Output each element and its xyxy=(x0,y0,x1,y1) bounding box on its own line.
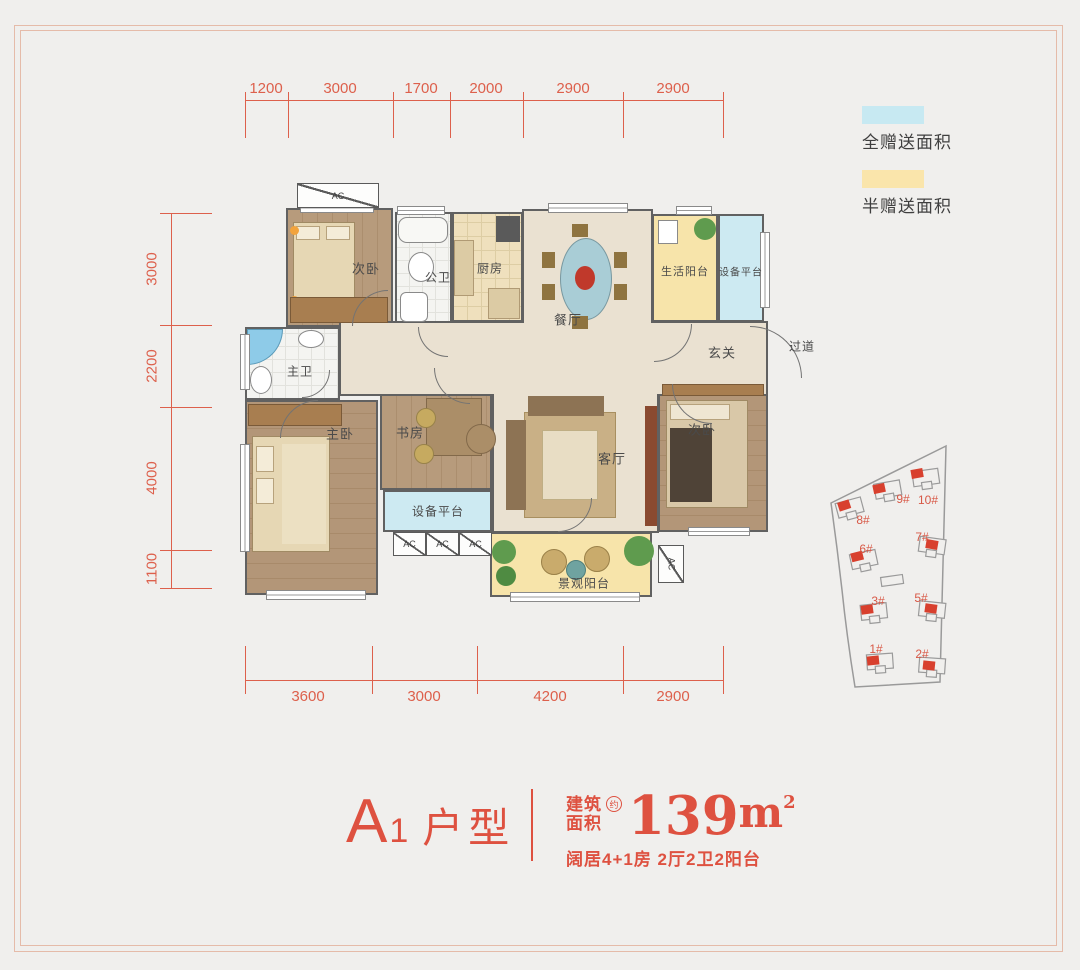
lamp xyxy=(290,226,299,235)
label-dining: 餐厅 xyxy=(554,310,582,329)
dim-tick xyxy=(160,407,212,408)
dimension-line-left xyxy=(171,213,172,588)
pillow xyxy=(296,226,320,240)
label-bedroom2-top: 次卧 xyxy=(352,259,380,278)
table-centerpiece xyxy=(575,266,595,290)
chair xyxy=(614,252,627,268)
dim-tick xyxy=(245,92,246,138)
ac-platform-3: AC xyxy=(459,532,492,556)
chair xyxy=(542,284,555,300)
dim-bottom-0: 3600 xyxy=(291,688,324,705)
area-label-line2: 面积 xyxy=(566,815,602,834)
pillow xyxy=(326,226,350,240)
dim-left-2: 4000 xyxy=(144,461,161,494)
dim-top-0: 1200 xyxy=(249,80,282,97)
label-equip-bottom: 设备平台 xyxy=(412,503,464,520)
plant xyxy=(694,218,716,240)
dim-tick xyxy=(288,92,289,138)
window xyxy=(676,206,712,215)
unit-type-letter: A xyxy=(346,796,387,849)
dim-tick xyxy=(450,92,451,138)
dimension-line-bottom xyxy=(245,680,723,681)
area-label-line1: 建筑 xyxy=(566,796,602,815)
site-label-3: 3# xyxy=(871,594,884,608)
blanket xyxy=(282,444,326,544)
plant xyxy=(492,540,516,564)
ac-platform-right: AC xyxy=(658,545,684,583)
dim-tick xyxy=(623,92,624,138)
side-table xyxy=(466,424,496,454)
site-plan xyxy=(815,438,965,704)
dim-bottom-1: 3000 xyxy=(407,688,440,705)
unit-description: 阔居4+1房 2厅2卫2阳台 xyxy=(566,845,761,870)
window xyxy=(510,592,640,602)
site-label-9: 9# xyxy=(896,492,909,506)
window xyxy=(548,203,628,213)
dim-tick xyxy=(245,646,246,694)
sofa xyxy=(528,396,604,416)
dim-bottom-3: 2900 xyxy=(656,688,689,705)
dim-tick xyxy=(393,92,394,138)
area-value: 139 xyxy=(628,796,739,837)
dim-left-0: 3000 xyxy=(144,252,161,285)
label-view-balcony: 景观阳台 xyxy=(558,575,610,592)
unit-type-suffix: 户型 xyxy=(422,810,514,847)
dim-tick xyxy=(723,92,724,138)
sofa xyxy=(506,420,526,510)
dim-tick xyxy=(160,325,212,326)
dim-tick xyxy=(160,550,212,551)
label-life-balcony: 生活阳台 xyxy=(661,263,709,279)
dim-top-1: 3000 xyxy=(323,80,356,97)
area-block: 建筑 面积 约 139 m 2 xyxy=(566,796,796,837)
dim-left-1: 2200 xyxy=(144,349,161,382)
dimension-line-top xyxy=(245,100,723,101)
legend-label-half-gift: 半赠送面积 xyxy=(862,192,952,217)
site-label-6: 6# xyxy=(859,542,872,556)
ac-label: AC xyxy=(436,539,449,549)
legend-label-full-gift: 全赠送面积 xyxy=(862,128,952,153)
dim-top-4: 2900 xyxy=(556,80,589,97)
sink xyxy=(298,330,324,348)
washer xyxy=(658,220,678,244)
dim-tick xyxy=(623,646,624,694)
blanket xyxy=(670,428,712,502)
dim-tick xyxy=(523,92,524,138)
balcony-chair xyxy=(541,549,567,575)
label-equip-top: 设备平台 xyxy=(719,264,763,279)
dim-tick xyxy=(160,213,212,214)
site-label-1: 1# xyxy=(869,642,882,656)
floorplan-page: 全赠送面积 半赠送面积 1200 3000 1700 2000 2900 290… xyxy=(0,0,1080,970)
dim-top-5: 2900 xyxy=(656,80,689,97)
chair xyxy=(414,444,434,464)
area-label: 建筑 面积 xyxy=(566,796,602,833)
toilet xyxy=(250,366,272,394)
site-label-7: 7# xyxy=(915,530,928,544)
dim-tick xyxy=(723,646,724,694)
kitchen-counter xyxy=(488,288,520,319)
dim-top-3: 2000 xyxy=(469,80,502,97)
pillow xyxy=(256,478,274,504)
ac-label: AC xyxy=(469,539,482,549)
plant xyxy=(496,566,516,586)
chair xyxy=(572,224,588,237)
ac-platform-1: AC xyxy=(393,532,426,556)
window xyxy=(397,206,445,215)
coffee-table xyxy=(542,430,598,500)
plant xyxy=(624,536,654,566)
area-unit: m xyxy=(739,796,783,830)
dim-left-3: 1100 xyxy=(144,553,161,585)
tv-cabinet xyxy=(645,406,657,526)
fridge xyxy=(496,216,520,242)
approx-badge: 约 xyxy=(606,796,622,812)
label-master-bedroom: 主卧 xyxy=(326,424,354,443)
window xyxy=(240,334,250,390)
window xyxy=(240,444,250,552)
legend-swatch-full-gift xyxy=(862,106,924,124)
label-corridor: 过道 xyxy=(789,338,815,355)
kitchen-counter xyxy=(454,240,474,296)
label-living: 客厅 xyxy=(598,449,626,468)
dim-top-2: 1700 xyxy=(404,80,437,97)
ac-label: AC xyxy=(666,558,676,571)
dim-tick xyxy=(160,588,212,589)
sink xyxy=(400,292,428,322)
site-label-2: 2# xyxy=(915,647,928,661)
ac-platform-2: AC xyxy=(426,532,459,556)
balcony-chair xyxy=(584,546,610,572)
area-exponent: 2 xyxy=(783,794,796,812)
label-hallway: 玄关 xyxy=(708,343,736,362)
dim-tick xyxy=(477,646,478,694)
legend-swatch-half-gift xyxy=(862,170,924,188)
label-study: 书房 xyxy=(396,423,424,442)
window xyxy=(266,590,366,600)
unit-type-title: A 1 户型 xyxy=(346,796,514,851)
ac-platform-top: AC xyxy=(297,183,379,208)
label-kitchen: 厨房 xyxy=(477,260,503,277)
dim-bottom-2: 4200 xyxy=(533,688,566,705)
unit-type-number: 1 xyxy=(389,812,408,851)
chair xyxy=(614,284,627,300)
chair xyxy=(542,252,555,268)
site-label-5: 5# xyxy=(914,591,927,605)
window xyxy=(688,527,750,536)
bathtub xyxy=(398,217,448,243)
pillow xyxy=(256,446,274,472)
label-bedroom2-right: 次卧 xyxy=(688,420,716,439)
site-label-8: 8# xyxy=(856,513,869,527)
label-master-bath: 主卫 xyxy=(287,363,313,380)
site-label-10: 10# xyxy=(918,493,938,507)
ac-label: AC xyxy=(403,539,416,549)
ac-label: AC xyxy=(332,191,345,201)
title-divider xyxy=(531,789,533,861)
label-public-bath: 公卫 xyxy=(425,269,451,286)
dim-tick xyxy=(372,646,373,694)
